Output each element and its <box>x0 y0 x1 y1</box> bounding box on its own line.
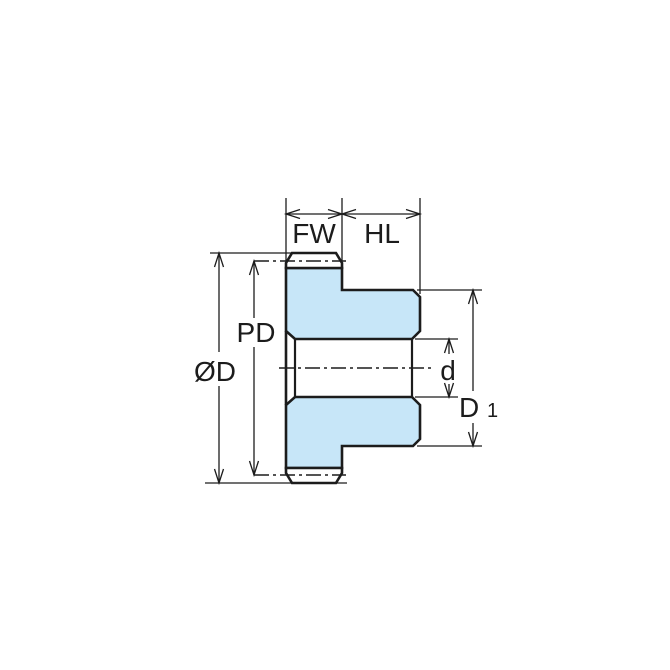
gear-body-lower-half <box>286 397 420 468</box>
label-outside-diameter: ØD <box>194 356 236 387</box>
label-hub-length: HL <box>364 218 400 249</box>
drawing-canvas: FW HL PD ØD d D 1 <box>0 0 670 670</box>
label-hub-diameter-main: D <box>459 392 479 423</box>
gear-body-upper-half <box>286 268 420 339</box>
label-bore-diameter: d <box>440 355 456 386</box>
label-hub-diameter: D 1 <box>459 392 498 423</box>
label-face-width: FW <box>292 218 336 249</box>
label-hub-diameter-subscript: 1 <box>487 400 498 422</box>
gear-dimension-drawing: FW HL PD ØD d D 1 <box>0 0 670 670</box>
drawing-root: FW HL PD ØD d D 1 <box>194 198 498 483</box>
label-pitch-diameter: PD <box>237 317 276 348</box>
